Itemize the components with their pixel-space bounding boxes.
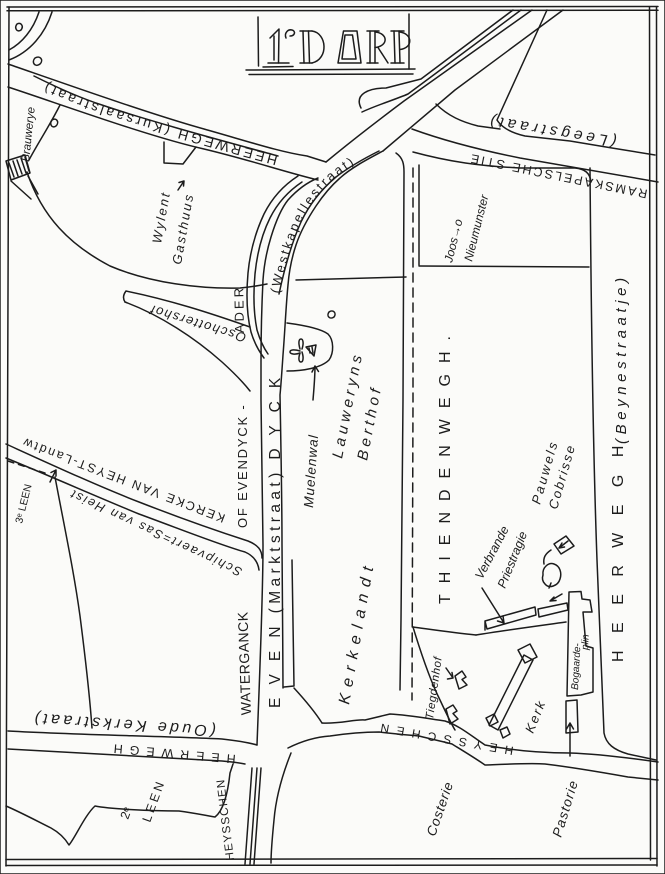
svg-text:Kerkelandt: Kerkelandt [336,558,378,705]
svg-text:Kerk: Kerk [522,697,549,735]
svg-text:3ᵉ LEEN: 3ᵉ LEEN [13,483,34,525]
svg-text:Muelenwal: Muelenwal [301,434,321,508]
svg-text:WATERGANCK: WATERGANCK [234,611,254,715]
svg-text:(Leegstraat): (Leegstraat) [485,111,618,149]
svg-text:2ᵉ: 2ᵉ [118,805,135,821]
svg-text:HEERWEGH (Kursaalstraat): HEERWEGH (Kursaalstraat) [39,79,279,169]
svg-text:Brauwerye: Brauwerye [20,106,38,162]
svg-text:plin: plin [580,634,592,652]
svg-text:(Oude Kerkstraat): (Oude Kerkstraat) [31,709,217,739]
svg-text:Berthof: Berthof [354,384,385,462]
svg-text:HEYSSCHEN: HEYSSCHEN [215,778,237,861]
svg-text:Costerie: Costerie [424,780,457,838]
svg-text:E V E N (Marktstraat) D Y C K: E V E N (Marktstraat) D Y C K [267,373,284,708]
svg-text:Pastorie: Pastorie [550,778,582,839]
svg-text:(Beynestraatje): (Beynestraatje) [613,273,630,444]
svg-text:(Westkapellestraat): (Westkapellestraat) [267,153,358,295]
svg-text:Gasthuus: Gasthuus [169,192,196,266]
svg-text:ADER: ADER [231,285,247,333]
svg-text:Wylent: Wylent [149,190,173,245]
svg-text:Tiegdenhof: Tiegdenhof [424,655,445,721]
svg-text:Nieumunster: Nieumunster [461,192,491,262]
svg-text:HEERWEGH: HEERWEGH [610,428,627,662]
svg-text:HEERWEGH: HEERWEGH [106,741,236,766]
svg-text:THIENDENWEGH.: THIENDENWEGH. [437,325,454,604]
svg-text:OF EVENDYCK -: OF EVENDYCK - [235,403,250,528]
svg-text:LEEN: LEEN [140,777,168,824]
